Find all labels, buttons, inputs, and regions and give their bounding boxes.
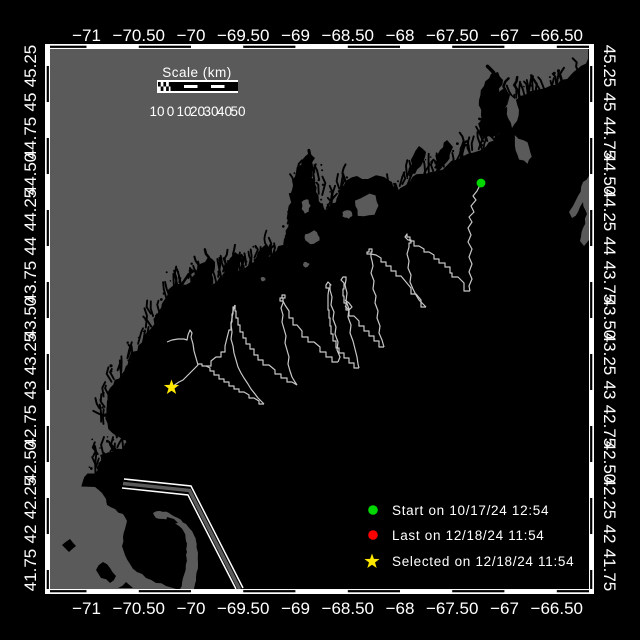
svg-text:−71: −71 [72, 599, 101, 618]
svg-text:44.25: 44.25 [21, 189, 40, 232]
svg-text:−67: −67 [490, 26, 519, 45]
svg-text:Start on 10/17/24 12:54: Start on 10/17/24 12:54 [392, 503, 549, 518]
svg-text:Last on 12/18/24 11:54: Last on 12/18/24 11:54 [392, 528, 545, 543]
svg-text:45.25: 45.25 [600, 45, 619, 88]
svg-text:−67.50: −67.50 [426, 599, 478, 618]
svg-text:−69.50: −69.50 [217, 26, 269, 45]
svg-text:41.75: 41.75 [21, 549, 40, 592]
svg-text:45: 45 [21, 93, 40, 112]
svg-text:43: 43 [21, 381, 40, 400]
svg-text:42.25: 42.25 [21, 477, 40, 520]
svg-text:−66.50: −66.50 [531, 599, 583, 618]
svg-text:−67.50: −67.50 [426, 26, 478, 45]
svg-text:50: 50 [230, 104, 245, 119]
svg-text:−68: −68 [386, 26, 415, 45]
svg-text:−70.50: −70.50 [113, 599, 165, 618]
svg-text:44.25: 44.25 [600, 189, 619, 232]
svg-text:42: 42 [21, 525, 40, 544]
svg-text:−70.50: −70.50 [113, 26, 165, 45]
svg-text:43.25: 43.25 [600, 333, 619, 376]
svg-text:45.25: 45.25 [21, 45, 40, 88]
svg-text:−70: −70 [177, 26, 206, 45]
svg-text:0: 0 [167, 104, 175, 119]
svg-text:42: 42 [600, 525, 619, 544]
svg-text:−69: −69 [281, 26, 310, 45]
svg-text:Selected on 12/18/24 11:54: Selected on 12/18/24 11:54 [392, 554, 574, 569]
svg-text:41.75: 41.75 [600, 549, 619, 592]
svg-text:Scale (km): Scale (km) [162, 65, 232, 80]
svg-text:42.25: 42.25 [600, 477, 619, 520]
svg-text:43: 43 [600, 381, 619, 400]
svg-text:−68: −68 [386, 599, 415, 618]
svg-text:−68.50: −68.50 [322, 599, 374, 618]
svg-text:45: 45 [600, 93, 619, 112]
svg-text:10: 10 [149, 104, 164, 119]
svg-text:43.25: 43.25 [21, 333, 40, 376]
svg-text:−69.50: −69.50 [217, 599, 269, 618]
svg-text:−71: −71 [72, 26, 101, 45]
svg-text:−69: −69 [281, 599, 310, 618]
svg-text:44: 44 [600, 237, 619, 256]
svg-text:44: 44 [21, 237, 40, 256]
svg-text:−68.50: −68.50 [322, 26, 374, 45]
svg-text:−66.50: −66.50 [531, 26, 583, 45]
svg-text:−67: −67 [490, 599, 519, 618]
svg-text:−70: −70 [177, 599, 206, 618]
